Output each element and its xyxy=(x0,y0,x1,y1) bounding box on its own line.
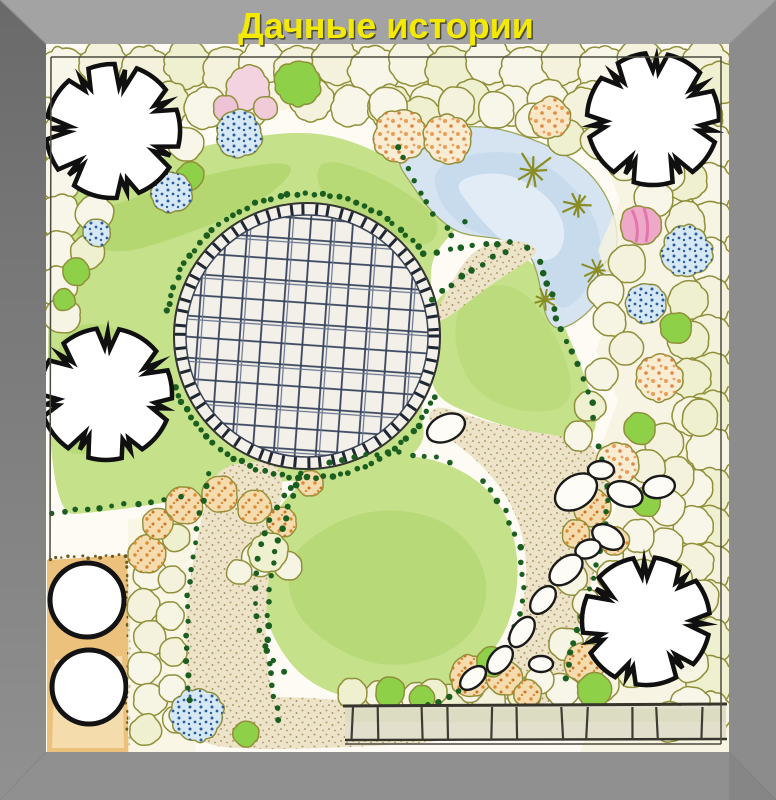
svg-text:Дачные истории: Дачные истории xyxy=(238,5,534,46)
